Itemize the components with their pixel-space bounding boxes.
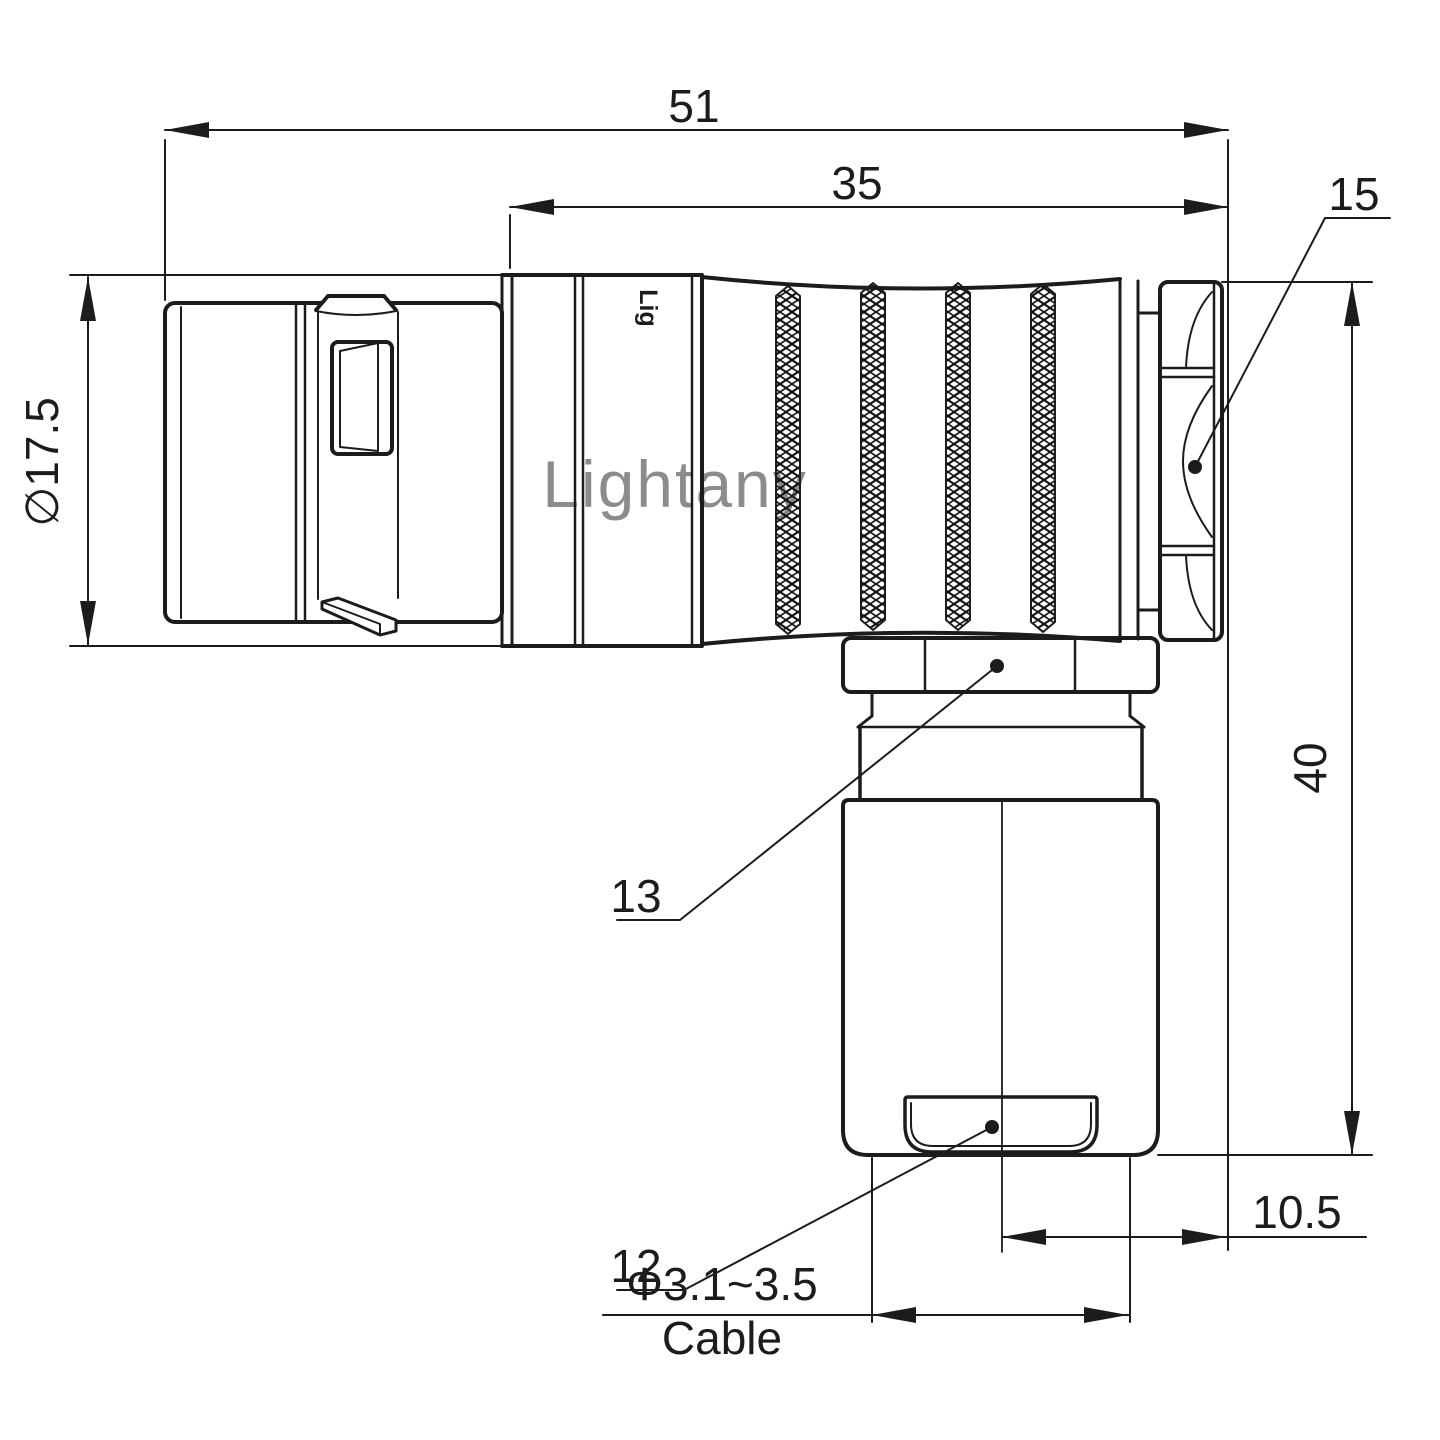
leader-dot-15	[1188, 460, 1202, 474]
bayonet-slot	[332, 342, 392, 454]
connector-technical-drawing: Lightany	[0, 0, 1440, 1440]
engraving-text: Lig	[634, 289, 662, 327]
cable-end-cap	[905, 1097, 1097, 1152]
knurl-band	[1031, 284, 1055, 632]
leader-dot-13	[990, 659, 1004, 673]
dim-rear-length-label: 35	[831, 157, 882, 209]
knurl-band	[861, 283, 885, 630]
hex-back-nut	[1160, 282, 1222, 640]
knurl-band	[776, 286, 800, 634]
coupling-sleeve	[165, 296, 502, 635]
cable-word-label: Cable	[662, 1312, 782, 1364]
part-label-12: 12	[610, 1240, 661, 1292]
bayonet-lug	[316, 296, 396, 310]
dimension-lines	[88, 130, 1372, 1322]
part-leaders	[617, 218, 1390, 1290]
part-label-15: 15	[1328, 168, 1379, 220]
leader-dot-12	[985, 1120, 999, 1134]
cable-exit-section	[843, 638, 1158, 1252]
drawing-canvas: Lightany	[0, 0, 1440, 1440]
dim-coupling-diameter-label: ∅17.5	[16, 397, 68, 527]
dim-overall-height-label: 40	[1284, 742, 1336, 793]
bottom-key-wedge	[322, 598, 396, 635]
leader-15	[1188, 218, 1390, 474]
leader-13	[617, 659, 1004, 920]
dim-overall-length-label: 51	[668, 80, 719, 132]
dim-exit-offset-label: 10.5	[1252, 1186, 1342, 1238]
part-label-13: 13	[610, 870, 661, 922]
knurl-band	[946, 283, 970, 630]
cable-barrel	[843, 800, 1158, 1155]
